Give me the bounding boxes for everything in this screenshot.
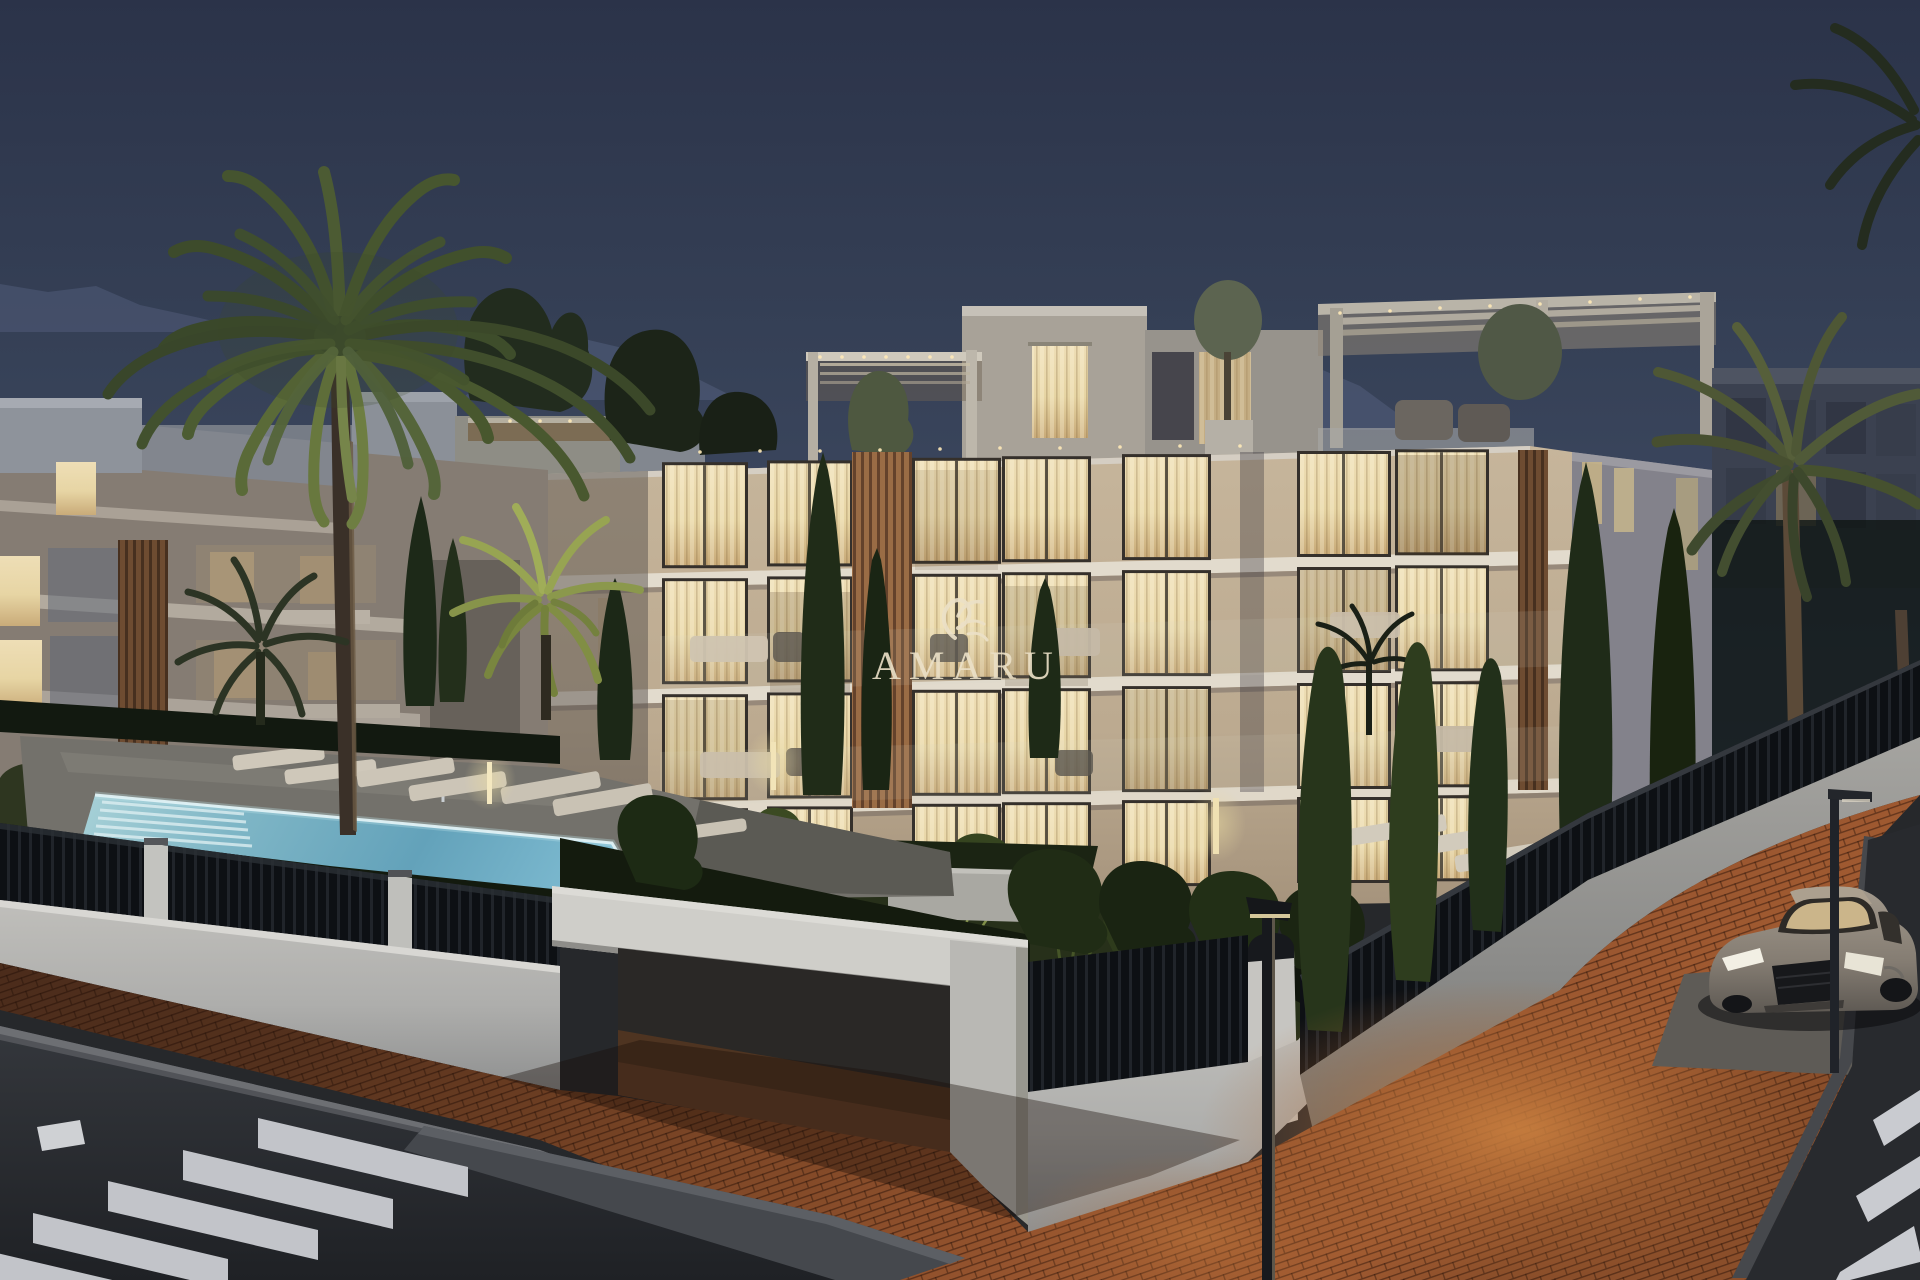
svg-text:AMARU: AMARU — [872, 643, 1061, 688]
